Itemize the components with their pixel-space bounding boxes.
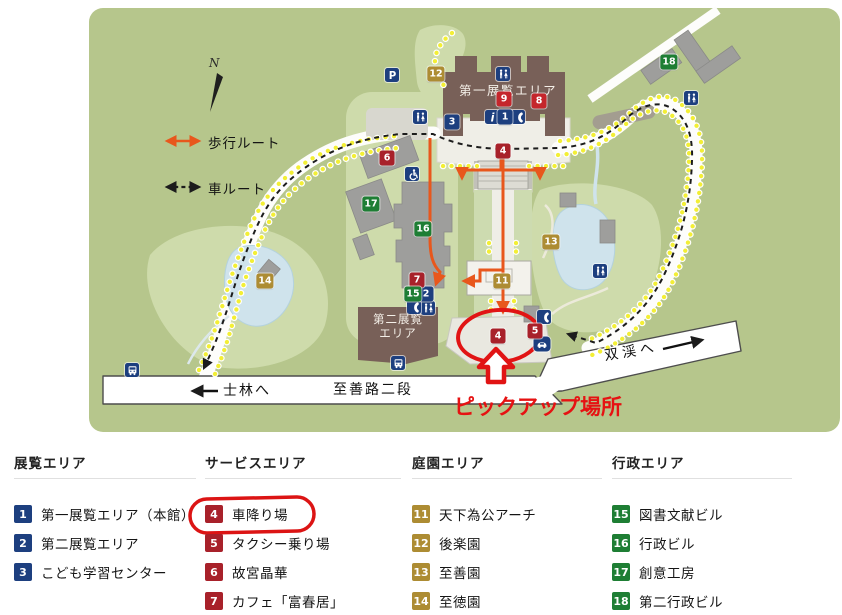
legend-number-badge: 13 [412, 563, 430, 581]
legend-number-badge: 14 [412, 592, 430, 610]
map-marker-7: 7 [410, 273, 425, 288]
legend-item-5: 5タクシー乗り場 [205, 534, 330, 552]
compass-north-label: N [209, 56, 220, 70]
legend-section-4: 行政エリア15図書文献ビル16行政ビル17創意工房18第二行政ビル [612, 452, 792, 479]
phone-icon [537, 310, 551, 324]
wheelchair-icon [405, 167, 419, 181]
map-marker-8: 8 [532, 94, 547, 109]
legend-item-7: 7カフェ「富春居」 [205, 592, 344, 610]
legend-item-label: 後楽園 [439, 533, 481, 553]
second-exhibition-line1: 第二展覧 [361, 313, 435, 327]
legend-item-label: 行政ビル [639, 533, 695, 553]
legend-item-label: 創意工房 [639, 562, 695, 582]
legend-item-label: 故宮晶華 [232, 562, 288, 582]
legend-item-label: 第一展覧エリア（本館） [41, 504, 195, 524]
legend-item-16: 16行政ビル [612, 534, 695, 552]
legend-number-badge: 18 [612, 592, 630, 610]
phone-icon [511, 110, 525, 124]
legend-item-label: 図書文献ビル [639, 504, 723, 524]
legend-item-label: 車降り場 [232, 504, 288, 524]
legend-number-badge: 11 [412, 505, 430, 523]
legend-item-4: 4車降り場 [205, 505, 288, 523]
map-marker-9: 9 [497, 92, 512, 107]
legend-number-badge: 2 [14, 534, 32, 552]
restroom-icon [684, 91, 698, 105]
legend-number-badge: 3 [14, 563, 32, 581]
car-route-legend-label: 車ルート [208, 178, 266, 198]
legend-item-label: 至善園 [439, 562, 481, 582]
palace-museum-map: N 歩行ルート 車ルート 第一展覧エリア 第二展覧 エリア 士林へ 至善路二段 … [0, 0, 842, 440]
restroom-icon [413, 110, 427, 124]
legend-number-badge: 5 [205, 534, 223, 552]
map-marker-1: 1 [498, 110, 513, 125]
walk-route-legend-label: 歩行ルート [208, 132, 281, 152]
legend-number-badge: 15 [612, 505, 630, 523]
map-marker-11: 11 [493, 274, 510, 289]
road-label-zhishan: 至善路二段 [333, 379, 413, 399]
legend-item-1: 1第一展覧エリア（本館） [14, 505, 195, 523]
legend-section-2: サービスエリア4車降り場5タクシー乗り場6故宮晶華7カフェ「富春居」 [205, 452, 401, 479]
legend-number-badge: 7 [205, 592, 223, 610]
legend-item-2: 2第二展覧エリア [14, 534, 139, 552]
map-marker-3: 3 [445, 115, 460, 130]
legend-number-badge: 12 [412, 534, 430, 552]
map-legend: 展覧エリア1第一展覧エリア（本館）2第二展覧エリア3こども学習センターサービスエ… [0, 452, 842, 615]
legend-item-18: 18第二行政ビル [612, 592, 723, 610]
second-exhibition-line2: エリア [361, 327, 435, 341]
legend-item-label: 至徳園 [439, 591, 481, 611]
map-marker-13: 13 [542, 235, 559, 250]
map-marker-4-dropoff: 4 [496, 144, 511, 159]
legend-item-13: 13至善園 [412, 563, 481, 581]
pickup-location-annotation: ピックアップ場所 [454, 391, 622, 421]
map-marker-15: 15 [404, 287, 421, 302]
legend-item-label: カフェ「富春居」 [232, 591, 344, 611]
legend-section-title: 庭園エリア [412, 452, 602, 479]
legend-number-badge: 6 [205, 563, 223, 581]
phone-icon [407, 300, 421, 314]
legend-item-3: 3こども学習センター [14, 563, 167, 581]
legend-item-12: 12後楽園 [412, 534, 481, 552]
legend-item-6: 6故宮晶華 [205, 563, 288, 581]
legend-section-title: 行政エリア [612, 452, 792, 479]
restroom-icon [496, 67, 510, 81]
legend-section-1: 展覧エリア1第一展覧エリア（本館）2第二展覧エリア3こども学習センター [14, 452, 196, 479]
legend-item-label: 天下為公アーチ [439, 504, 536, 524]
restroom-icon [593, 264, 607, 278]
legend-item-label: 第二展覧エリア [41, 533, 139, 553]
car-icon [534, 337, 551, 352]
legend-number-badge: 17 [612, 563, 630, 581]
bus-icon [125, 363, 139, 377]
legend-section-title: 展覧エリア [14, 452, 196, 479]
map-marker-16: 16 [414, 222, 431, 237]
map-marker-18: 18 [660, 55, 677, 70]
legend-item-label: タクシー乗り場 [232, 533, 330, 553]
legend-section-3: 庭園エリア11天下為公アーチ12後楽園13至善園14至徳園 [412, 452, 602, 479]
legend-item-15: 15図書文献ビル [612, 505, 723, 523]
legend-number-badge: 4 [205, 505, 223, 523]
legend-section-title: サービスエリア [205, 452, 401, 479]
legend-item-14: 14至徳園 [412, 592, 481, 610]
legend-item-11: 11天下為公アーチ [412, 505, 536, 523]
legend-number-badge: 16 [612, 534, 630, 552]
map-marker-12: 12 [427, 67, 444, 82]
legend-number-badge: 1 [14, 505, 32, 523]
map-marker-5: 5 [528, 324, 543, 339]
second-exhibition-building-label: 第二展覧 エリア [361, 313, 435, 341]
legend-item-label: こども学習センター [41, 562, 167, 582]
bus-icon [391, 356, 405, 370]
parking-icon [385, 68, 399, 82]
screenshot-root: N 歩行ルート 車ルート 第一展覧エリア 第二展覧 エリア 士林へ 至善路二段 … [0, 0, 842, 615]
restroom-icon [421, 301, 435, 315]
legend-item-label: 第二行政ビル [639, 591, 723, 611]
road-label-shilin: 士林へ [223, 380, 271, 400]
map-marker-17: 17 [362, 197, 379, 212]
legend-item-17: 17創意工房 [612, 563, 695, 581]
map-marker-6: 6 [380, 151, 395, 166]
map-marker-4-pickup: 4 [491, 329, 506, 344]
map-marker-14: 14 [256, 274, 273, 289]
